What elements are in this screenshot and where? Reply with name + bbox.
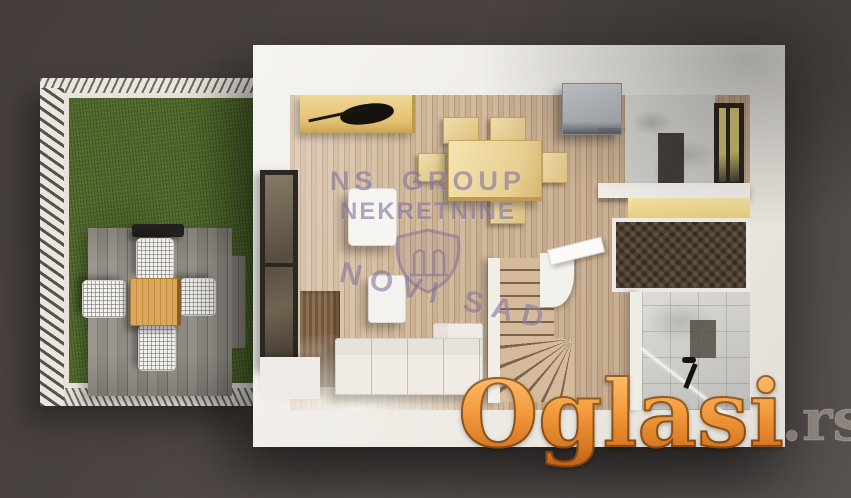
render-canvas: NS GROUP NEKRETNINE NOVI SAD Oglasi.rs: [0, 0, 851, 498]
dining-table: [448, 140, 542, 201]
left-window: [260, 170, 298, 368]
grill: [132, 224, 184, 237]
l-shaped-sofa: [335, 338, 483, 395]
bathroom-wall: [630, 292, 642, 410]
kitchen-counter: [300, 95, 415, 133]
dining-chair: [418, 153, 446, 182]
staircase-winder: [500, 338, 574, 402]
shower-niche: [690, 320, 716, 358]
dining-chair: [490, 198, 526, 224]
fence-left: [40, 88, 64, 406]
open-door: [547, 236, 605, 265]
outdoor-dining-table: [130, 278, 181, 326]
doorway: [658, 133, 684, 187]
wardrobe-nook: [612, 218, 750, 292]
outdoor-chair-west: [82, 280, 126, 318]
site-tld: .rs: [782, 386, 851, 454]
pouf: [368, 275, 406, 323]
partition-shelf: [598, 183, 750, 198]
staircase-wall: [488, 258, 500, 403]
right-window-mullion: [726, 103, 730, 187]
outdoor-chair-south: [138, 325, 176, 371]
armchair: [348, 188, 397, 246]
shower-head: [682, 357, 696, 363]
floor-plan: [253, 45, 785, 447]
fence-top: [40, 78, 258, 93]
left-window-mullion: [260, 263, 298, 267]
outdoor-chair-east: [180, 278, 216, 316]
deck-side-strip: [232, 256, 246, 348]
dining-chair: [542, 152, 568, 183]
garden-area: [40, 78, 258, 406]
outdoor-chair-north: [136, 238, 174, 280]
interior-floor: [290, 95, 750, 410]
staircase-upper-flight: [568, 283, 630, 405]
window-bench: [260, 357, 320, 399]
